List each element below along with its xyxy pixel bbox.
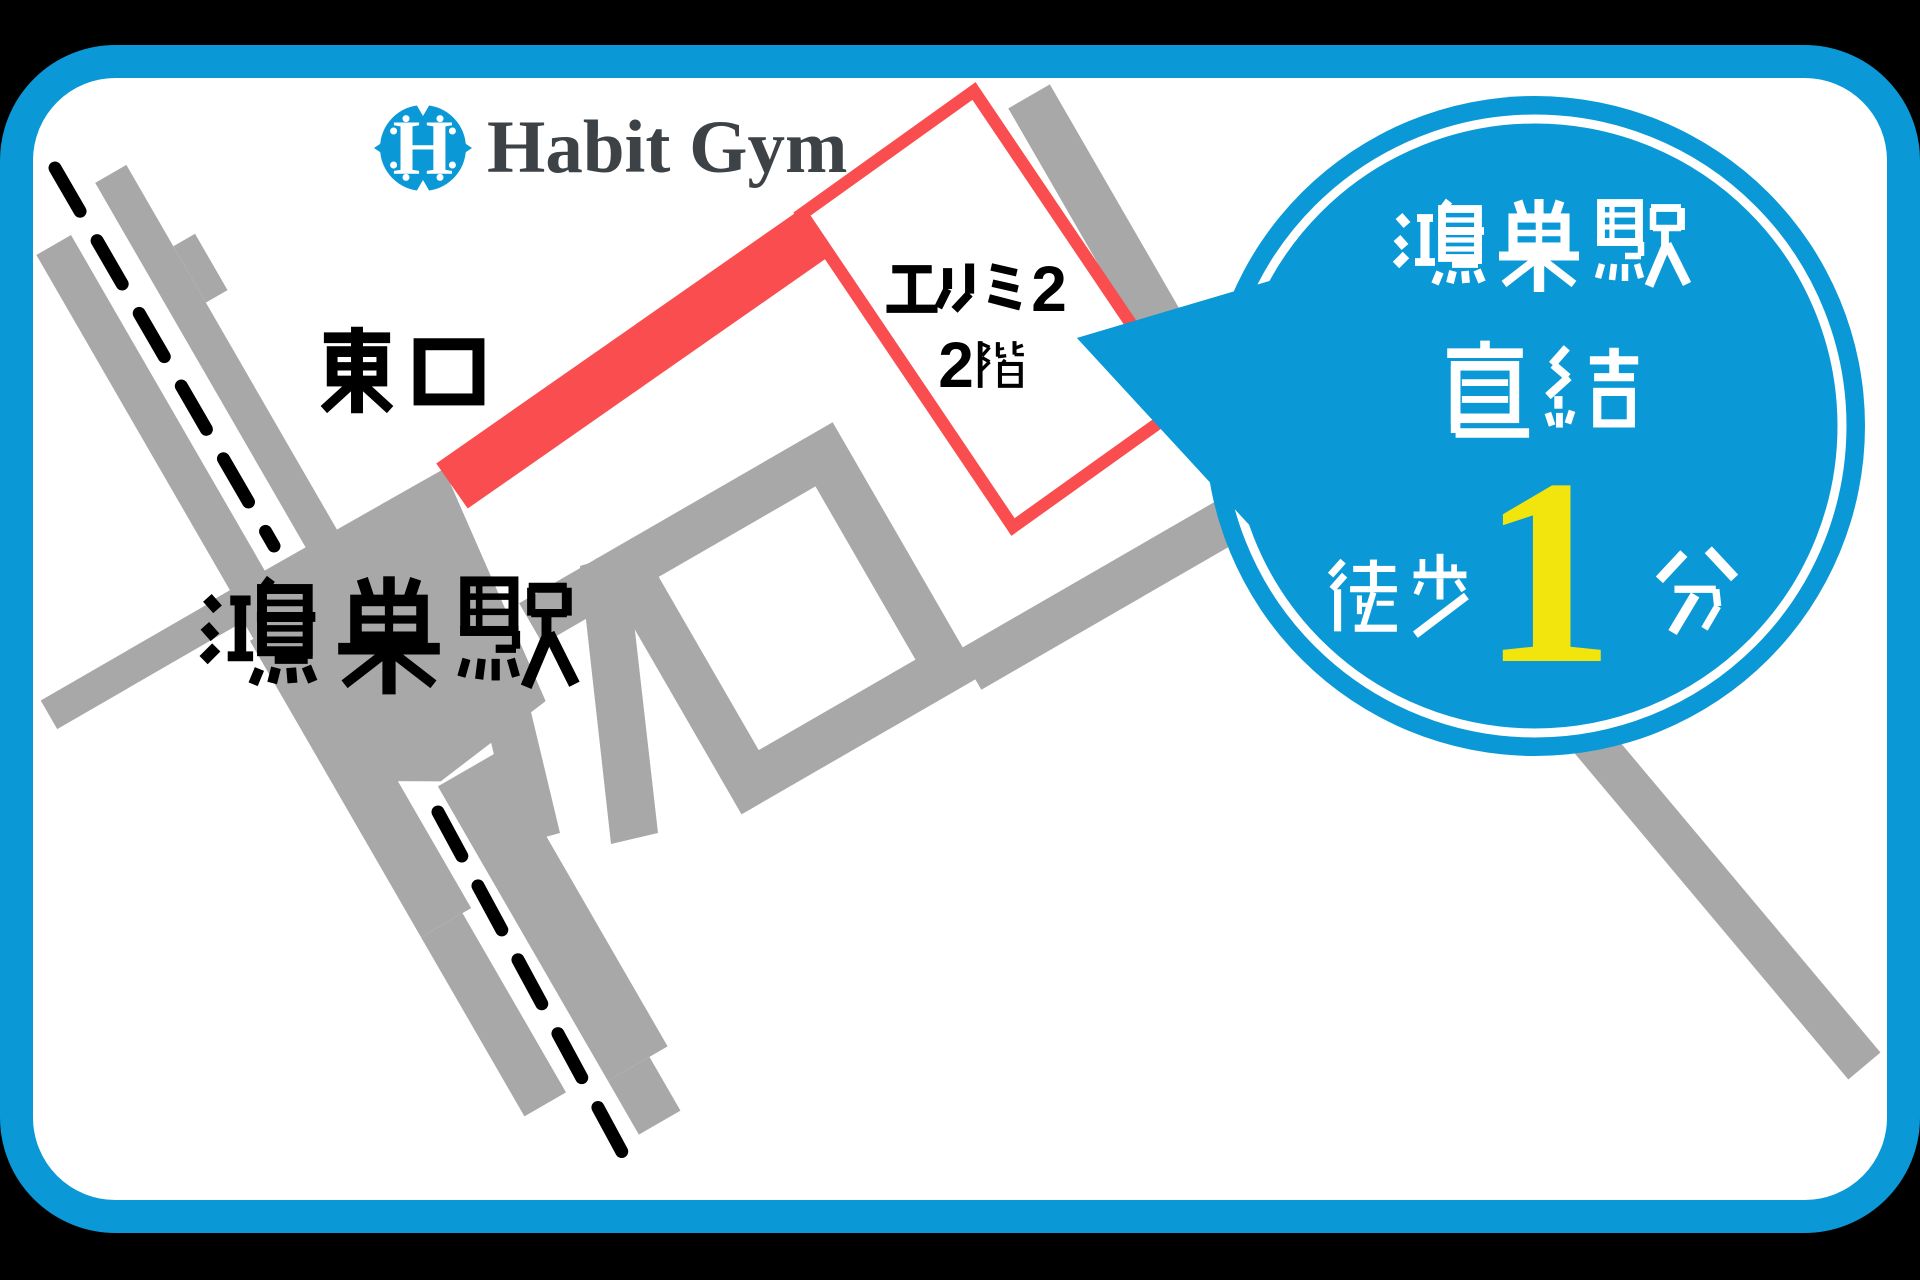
svg-text:Habit Gym: Habit Gym (487, 106, 847, 189)
svg-text:H: H (393, 104, 454, 191)
svg-text:1: 1 (1482, 424, 1615, 719)
svg-text:2: 2 (1031, 253, 1067, 325)
svg-text:2: 2 (938, 329, 974, 401)
